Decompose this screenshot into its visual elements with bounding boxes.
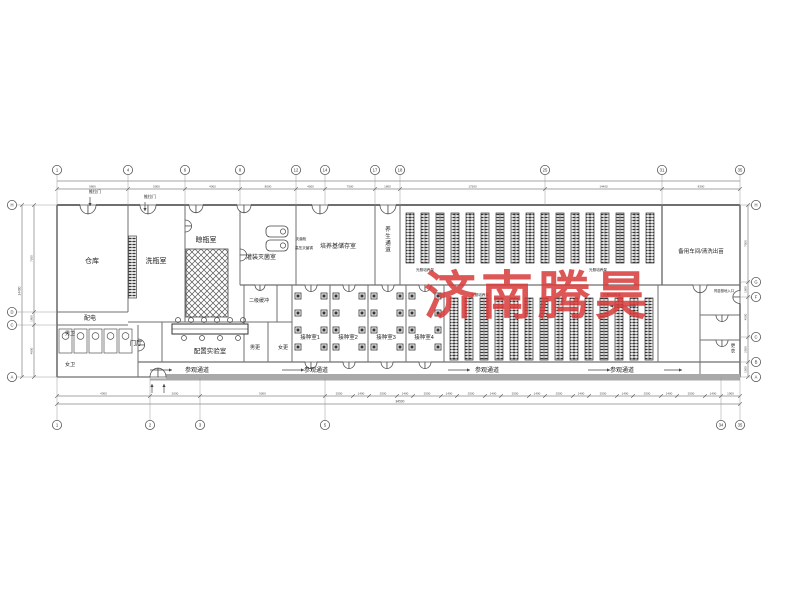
double-door-icon	[419, 362, 425, 369]
hatch-block	[186, 249, 228, 317]
corridor-band	[150, 374, 740, 381]
dim-text: 14400	[599, 185, 608, 189]
dim-text: 2500	[743, 346, 747, 353]
double-door-icon	[311, 285, 317, 292]
double-door-icon	[185, 220, 192, 226]
dim-text: 2500	[468, 392, 475, 396]
dim-text: 1900	[727, 392, 734, 396]
clean-bench-icon	[297, 346, 300, 349]
double-door-icon	[349, 285, 355, 292]
clean-bench-icon	[411, 329, 414, 332]
dim-text: 1400	[358, 392, 365, 396]
room-label: 灌装灭菌室	[246, 253, 276, 261]
dim-text: 1400	[534, 392, 541, 396]
dim-text: 4000	[209, 185, 216, 189]
clean-bench-icon	[335, 346, 338, 349]
grid-bubble-label: 12	[294, 168, 299, 173]
double-door-icon	[693, 285, 700, 293]
floor-plan-canvas: 9800500040008000450075001800175001440083…	[0, 0, 800, 600]
double-door-icon	[382, 285, 388, 292]
grid-bubble-label: H	[754, 203, 757, 208]
room-label: 育苗基地入口	[714, 288, 734, 293]
clean-bench-icon	[437, 329, 440, 332]
grid-bubble-label: G	[754, 280, 757, 285]
stool-icon	[218, 336, 223, 341]
room-label: 参观通道	[304, 366, 328, 374]
direction-arrow-icon	[150, 384, 153, 387]
double-door-icon	[388, 285, 394, 292]
room-label: 洗瓶室	[146, 256, 167, 265]
room-label: 通	[385, 239, 391, 247]
dim-text: 1400	[710, 392, 717, 396]
double-door-icon	[716, 340, 722, 347]
room-label: 道	[385, 246, 391, 254]
clean-bench-icon	[399, 295, 402, 298]
dim-text: 1400	[666, 392, 673, 396]
toilet-fixture-icon	[92, 333, 99, 340]
autoclave-icon	[266, 240, 288, 251]
grid-bubble-label: 25	[543, 168, 548, 173]
clean-bench-icon	[399, 312, 402, 315]
dim-text: 1800	[384, 185, 391, 189]
double-door-icon	[722, 340, 728, 347]
room-label: 光照培养架	[416, 267, 434, 272]
dim-text: 1400	[490, 392, 497, 396]
double-door-icon	[185, 226, 192, 232]
clean-bench-icon	[323, 295, 326, 298]
clean-bench-icon	[297, 312, 300, 315]
direction-arrow-icon	[610, 304, 613, 307]
room-label: 接种室1	[300, 333, 320, 341]
dim-text: 1400	[446, 392, 453, 396]
room-label: 参观通道	[610, 366, 634, 374]
dim-text: 2500	[644, 392, 651, 396]
dim-text: 5000	[259, 392, 266, 396]
double-door-icon	[387, 362, 393, 369]
room-label: 光照培养架	[603, 292, 621, 297]
room-label: 门厅	[130, 338, 144, 347]
room-label: 推拉门	[144, 193, 156, 199]
double-door-icon	[140, 205, 148, 214]
room-label: 配置实验室	[194, 346, 227, 355]
grid-bubble-label: B	[755, 360, 758, 365]
toilet-fixture-icon	[122, 333, 129, 340]
dim-text: 1400	[622, 392, 629, 396]
toilet-fixture-icon	[107, 333, 114, 340]
clean-bench-icon	[335, 312, 338, 315]
room-label: 灭菌柜	[296, 236, 307, 241]
double-door-icon	[419, 285, 425, 292]
dim-text: 7200	[29, 255, 33, 262]
drawing-sheet: 9800500040008000450075001800175001440083…	[0, 0, 800, 600]
dim-text: 2500	[336, 392, 343, 396]
double-door-icon	[196, 205, 203, 213]
conveyor-icon	[129, 236, 137, 298]
dim-text: 5000	[153, 185, 160, 189]
dim-text: 1800	[29, 315, 33, 322]
room-label: 参观通道	[475, 366, 499, 374]
room-label: 推拉门	[89, 188, 101, 194]
clean-bench-icon	[297, 329, 300, 332]
room-label: 仓库	[85, 256, 99, 265]
room-label: 高压灭菌锅	[295, 245, 313, 250]
clean-bench-icon	[399, 329, 402, 332]
double-door-icon	[425, 285, 431, 292]
toilet-fixture-icon	[77, 333, 84, 340]
room-label: 光照培养架	[471, 292, 489, 297]
grid-bubble-label: F	[755, 295, 758, 300]
grid-bubble-label: D	[10, 310, 13, 315]
room-label: 接种室4	[414, 333, 434, 341]
dim-text: 2500	[556, 392, 563, 396]
double-door-icon	[88, 205, 96, 214]
clean-bench-icon	[335, 329, 338, 332]
direction-arrow-icon	[679, 368, 682, 371]
stool-icon	[200, 336, 205, 341]
dim-text: 1400	[578, 392, 585, 396]
room-label: 晾瓶室	[196, 235, 217, 244]
room-label: 女更	[278, 344, 288, 351]
dim-text: 7500	[347, 185, 354, 189]
dim-text: 1800	[743, 286, 747, 293]
double-door-icon	[158, 368, 166, 377]
room-label: 男更	[250, 345, 260, 351]
clean-bench-icon	[411, 346, 414, 349]
autoclave-icon	[266, 226, 288, 237]
dim-text: 8000	[265, 185, 272, 189]
clean-bench-icon	[323, 346, 326, 349]
clean-bench-icon	[361, 312, 364, 315]
room-label: 衣	[731, 348, 736, 355]
double-door-icon	[388, 205, 396, 214]
dim-text: 1500	[743, 366, 747, 373]
dim-text: 2500	[380, 392, 387, 396]
double-door-icon	[425, 362, 431, 369]
dim-text: 7500	[743, 240, 747, 247]
grid-bubble-label: 31	[660, 168, 665, 173]
double-door-icon	[381, 362, 387, 369]
room-label: 二级缓冲	[249, 297, 269, 304]
grid-bubble-label: A	[755, 375, 758, 380]
room-label: 男卫	[65, 331, 75, 337]
clean-bench-icon	[323, 312, 326, 315]
dim-text: 1400	[402, 392, 409, 396]
stool-icon	[182, 336, 187, 341]
dim-text-overall: 84500	[396, 400, 405, 404]
double-door-icon	[80, 205, 88, 214]
double-door-icon	[380, 205, 388, 214]
room-label: 女卫	[65, 361, 75, 368]
dim-text: 4500	[307, 185, 314, 189]
double-door-icon	[733, 297, 740, 304]
clean-bench-icon	[361, 329, 364, 332]
stool-icon	[236, 336, 241, 341]
grid-bubble-label: 35	[738, 168, 743, 173]
room-label: 养	[385, 225, 391, 233]
grid-bubble-label: H	[10, 203, 13, 208]
dim-text: 9800	[89, 185, 96, 189]
clean-bench-icon	[335, 295, 338, 298]
double-door-icon	[700, 285, 707, 293]
double-door-icon	[237, 205, 244, 213]
double-door-icon	[343, 285, 349, 292]
room-label: 接种室3	[376, 333, 396, 341]
double-door-icon	[312, 205, 320, 214]
clean-bench-icon	[373, 295, 376, 298]
double-door-icon	[343, 362, 349, 369]
room-label: 光照培养架	[589, 267, 607, 272]
room-label: 参观通道	[185, 366, 209, 374]
clean-bench-icon	[373, 346, 376, 349]
clean-bench-icon	[411, 312, 414, 315]
double-door-icon	[150, 368, 158, 377]
grid-bubble-label: C	[10, 323, 13, 328]
double-door-icon	[189, 205, 196, 213]
clean-bench-icon	[437, 346, 440, 349]
double-door-icon	[255, 285, 260, 291]
clean-bench-icon	[411, 295, 414, 298]
clean-bench-icon	[399, 346, 402, 349]
double-door-icon	[722, 315, 728, 322]
clean-bench-icon	[437, 295, 440, 298]
dim-text: 2500	[424, 392, 431, 396]
grid-bubble-label: 34	[719, 423, 724, 428]
grid-bubble-label: 14	[323, 168, 328, 173]
room-label: 备用车间/清洗出苗	[678, 247, 724, 255]
grid-bubble-label: 17	[373, 168, 378, 173]
dim-text: 2500	[600, 392, 607, 396]
dim-text-overall: 14400	[17, 286, 21, 295]
direction-arrow-icon	[467, 368, 470, 371]
double-door-icon	[260, 285, 265, 291]
dim-text: 2000	[172, 392, 179, 396]
room-label: 生	[385, 232, 391, 240]
room-label: 配电	[84, 314, 96, 322]
clean-bench-icon	[361, 346, 364, 349]
dim-text: 2500	[512, 392, 519, 396]
dim-text: 8300	[698, 185, 705, 189]
dim-text: 2500	[688, 392, 695, 396]
double-door-icon	[349, 362, 355, 369]
direction-arrow-icon	[169, 368, 172, 371]
dim-text: 17500	[468, 185, 477, 189]
dim-text: 4300	[100, 392, 107, 396]
dim-text: 4000	[743, 313, 747, 320]
double-door-icon	[305, 285, 311, 292]
clean-bench-icon	[361, 295, 364, 298]
clean-bench-icon	[373, 329, 376, 332]
clean-bench-icon	[437, 312, 440, 315]
room-label: 接种室2	[338, 333, 358, 341]
double-door-icon	[716, 315, 722, 322]
room-label: 培养基储存室	[320, 242, 356, 250]
clean-bench-icon	[373, 312, 376, 315]
grid-bubble-label: 35	[738, 423, 743, 428]
grid-bubble-label: A	[11, 375, 14, 380]
direction-arrow-icon	[162, 384, 165, 387]
double-door-icon	[244, 205, 251, 213]
grid-bubble-label: C	[754, 335, 757, 340]
dim-text: 4800	[29, 347, 33, 354]
double-door-icon	[148, 205, 156, 214]
grid-bubble-label: 18	[398, 168, 403, 173]
double-door-icon	[320, 205, 328, 214]
clean-bench-icon	[297, 295, 300, 298]
clean-bench-icon	[323, 329, 326, 332]
